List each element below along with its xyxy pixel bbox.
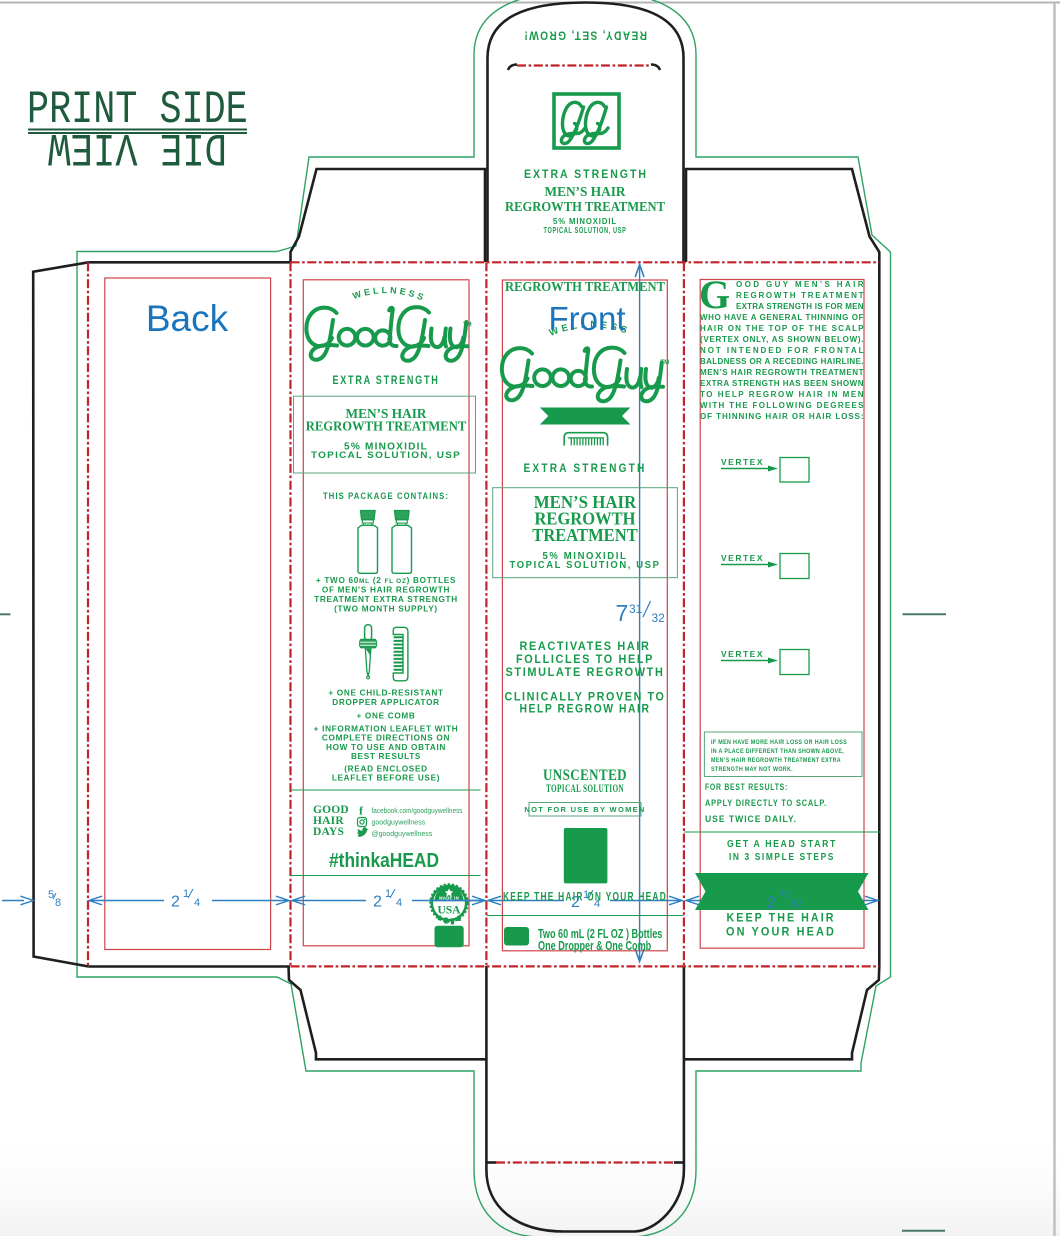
svg-text:8: 8	[55, 897, 61, 909]
svg-text:VERTEX: VERTEX	[721, 649, 764, 659]
svg-text:(VERTEX ONLY, AS SHOWN BELOW).: (VERTEX ONLY, AS SHOWN BELOW).	[700, 335, 864, 344]
svg-text:HELP REGROW HAIR: HELP REGROW HAIR	[520, 702, 651, 716]
svg-text:FOLLICLES TO HELP: FOLLICLES TO HELP	[516, 652, 654, 666]
svg-text:#thinkaHEAD: #thinkaHEAD	[329, 849, 439, 872]
svg-text:BALDNESS OR A RECEDING HAIRLIN: BALDNESS OR A RECEDING HAIRLINE.	[700, 357, 864, 366]
svg-text:+ TWO 60ML (2 FL OZ) BOTTLES: + TWO 60ML (2 FL OZ) BOTTLES	[316, 576, 456, 585]
svg-text:WHO HAVE A GENERAL THINNING OF: WHO HAVE A GENERAL THINNING OF	[700, 313, 864, 322]
svg-text:IN A PLACE DIFFERENT THAN SHOW: IN A PLACE DIFFERENT THAN SHOWN ABOVE,	[711, 748, 844, 755]
svg-text:DAYS: DAYS	[313, 826, 344, 838]
svg-text:MEN’S HAIR REGROWTH TREATMENT: MEN’S HAIR REGROWTH TREATMENT	[700, 368, 864, 377]
svg-text:TOPICAL SOLUTION, USP: TOPICAL SOLUTION, USP	[311, 450, 461, 461]
svg-text:G: G	[699, 272, 730, 317]
svg-text:2: 2	[373, 894, 382, 911]
svg-text:NOT FOR USE BY WOMEN: NOT FOR USE BY WOMEN	[524, 805, 645, 814]
svg-text:DIE VIEW: DIE VIEW	[47, 121, 227, 174]
svg-text:@goodguywellness: @goodguywellness	[372, 831, 433, 838]
svg-text:LEAFLET BEFORE USE): LEAFLET BEFORE USE)	[332, 774, 440, 783]
svg-text:EXTRA STRENGTH: EXTRA STRENGTH	[524, 169, 648, 181]
svg-text:Front: Front	[548, 300, 625, 337]
svg-text:USA: USA	[437, 905, 461, 917]
svg-text:STRENGTH MAY NOT WORK.: STRENGTH MAY NOT WORK.	[711, 766, 793, 773]
svg-text:31: 31	[629, 602, 643, 616]
svg-text:(READ ENCLOSED: (READ ENCLOSED	[344, 765, 428, 774]
svg-text:GET A HEAD START: GET A HEAD START	[727, 838, 837, 850]
svg-text:4: 4	[194, 897, 200, 909]
svg-text:TOPICAL SOLUTION: TOPICAL SOLUTION	[546, 783, 624, 795]
svg-text:VERTEX: VERTEX	[721, 553, 764, 563]
svg-text:WITH THE FOLLOWING DEGREES: WITH THE FOLLOWING DEGREES	[700, 401, 864, 410]
svg-text:32: 32	[790, 898, 802, 910]
svg-text:REGROWTH TREATMENT: REGROWTH TREATMENT	[505, 280, 666, 295]
svg-text:REACTIVATES HAIR: REACTIVATES HAIR	[520, 639, 651, 653]
svg-text:COMPLETE DIRECTIONS ON: COMPLETE DIRECTIONS ON	[322, 734, 450, 743]
svg-text:OF MEN’S HAIR REGROWTH: OF MEN’S HAIR REGROWTH	[322, 586, 450, 595]
svg-text:7: 7	[779, 889, 785, 901]
svg-text:TREATMENT: TREATMENT	[532, 525, 638, 545]
svg-text:MEN’S HAIR REGROWTH TREATMENT: MEN’S HAIR REGROWTH TREATMENT EXTRA	[711, 757, 841, 764]
svg-text:THIS PACKAGE CONTAINS:: THIS PACKAGE CONTAINS:	[323, 491, 449, 501]
svg-text:(TWO MONTH SUPPLY): (TWO MONTH SUPPLY)	[334, 605, 438, 614]
svg-text:+ ONE CHILD-RESISTANT: + ONE CHILD-RESISTANT	[328, 689, 443, 698]
svg-text:One Dropper & One Comb: One Dropper & One Comb	[538, 939, 651, 953]
svg-text:USE TWICE DAILY.: USE TWICE DAILY.	[705, 814, 797, 824]
svg-text:IN 3 SIMPLE STEPS: IN 3 SIMPLE STEPS	[729, 851, 835, 863]
svg-text:EXTRA STRENGTH IS FOR MEN: EXTRA STRENGTH IS FOR MEN	[736, 302, 864, 311]
svg-text:KEEP THE HAIR ON YOUR HEAD: KEEP THE HAIR ON YOUR HEAD	[503, 892, 667, 904]
svg-text:Back: Back	[146, 298, 229, 339]
svg-text:OF THINNING HAIR OR HAIR LOSS:: OF THINNING HAIR OR HAIR LOSS:	[700, 412, 864, 421]
svg-text:EXTRA STRENGTH: EXTRA STRENGTH	[524, 461, 647, 475]
svg-text:HAIR ON THE TOP OF THE SCALP: HAIR ON THE TOP OF THE SCALP	[700, 324, 864, 333]
svg-text:MEN’S HAIR: MEN’S HAIR	[545, 185, 627, 200]
svg-text:HOW TO USE AND OBTAIN: HOW TO USE AND OBTAIN	[326, 743, 446, 752]
svg-text:REGROWTH TREATMENT: REGROWTH TREATMENT	[306, 420, 467, 435]
svg-text:TOPICAL SOLUTION, USP: TOPICAL SOLUTION, USP	[544, 225, 627, 235]
svg-text:FOR BEST RESULTS:: FOR BEST RESULTS:	[705, 782, 788, 792]
svg-text:REGROWTH TREATMENT: REGROWTH TREATMENT	[505, 200, 666, 215]
svg-text:1: 1	[385, 888, 391, 900]
svg-text:7: 7	[616, 600, 629, 626]
svg-text:5: 5	[48, 889, 54, 901]
svg-text:STIMULATE REGROWTH: STIMULATE REGROWTH	[506, 665, 665, 679]
svg-text:IF MEN HAVE MORE HAIR LOSS OR: IF MEN HAVE MORE HAIR LOSS OR HAIR LOSS	[711, 739, 847, 746]
svg-text:4: 4	[396, 897, 402, 909]
svg-text:VERTEX: VERTEX	[721, 457, 764, 467]
svg-text:TM: TM	[463, 323, 472, 329]
svg-text:2: 2	[171, 894, 180, 911]
svg-text:TOPICAL SOLUTION, USP: TOPICAL SOLUTION, USP	[510, 559, 661, 571]
svg-text:EXTRA STRENGTH HAS BEEN SHOWN: EXTRA STRENGTH HAS BEEN SHOWN	[700, 379, 864, 388]
svg-text:facebook.com/goodguywellness: facebook.com/goodguywellness	[372, 808, 463, 815]
svg-text:UNSCENTED: UNSCENTED	[543, 767, 627, 784]
svg-text:2: 2	[767, 895, 776, 912]
svg-text:TREATMENT EXTRA STRENGTH: TREATMENT EXTRA STRENGTH	[314, 595, 458, 604]
svg-text:goodguywellness: goodguywellness	[372, 820, 426, 827]
svg-text:32: 32	[652, 611, 666, 625]
svg-text:+ INFORMATION LEAFLET WITH: + INFORMATION LEAFLET WITH	[314, 725, 459, 734]
svg-text:EXTRA STRENGTH: EXTRA STRENGTH	[333, 375, 440, 387]
svg-text:BEST RESULTS: BEST RESULTS	[351, 752, 421, 761]
svg-text:DROPPER APPLICATOR: DROPPER APPLICATOR	[332, 698, 440, 707]
svg-text:ON YOUR HEAD: ON YOUR HEAD	[726, 927, 836, 939]
svg-text:KEEP THE HAIR: KEEP THE HAIR	[727, 913, 836, 925]
svg-text:TM: TM	[661, 360, 670, 366]
svg-text:1: 1	[183, 888, 189, 900]
svg-text:OOD GUY MEN’S HAIR: OOD GUY MEN’S HAIR	[736, 280, 864, 289]
svg-text:APPLY DIRECTLY TO SCALP.: APPLY DIRECTLY TO SCALP.	[705, 798, 827, 808]
svg-text:TO HELP REGROW HAIR IN MEN: TO HELP REGROW HAIR IN MEN	[700, 390, 864, 399]
svg-text:+ ONE COMB: + ONE COMB	[356, 712, 415, 721]
svg-text:READY, SET, GROW!: READY, SET, GROW!	[523, 29, 647, 41]
